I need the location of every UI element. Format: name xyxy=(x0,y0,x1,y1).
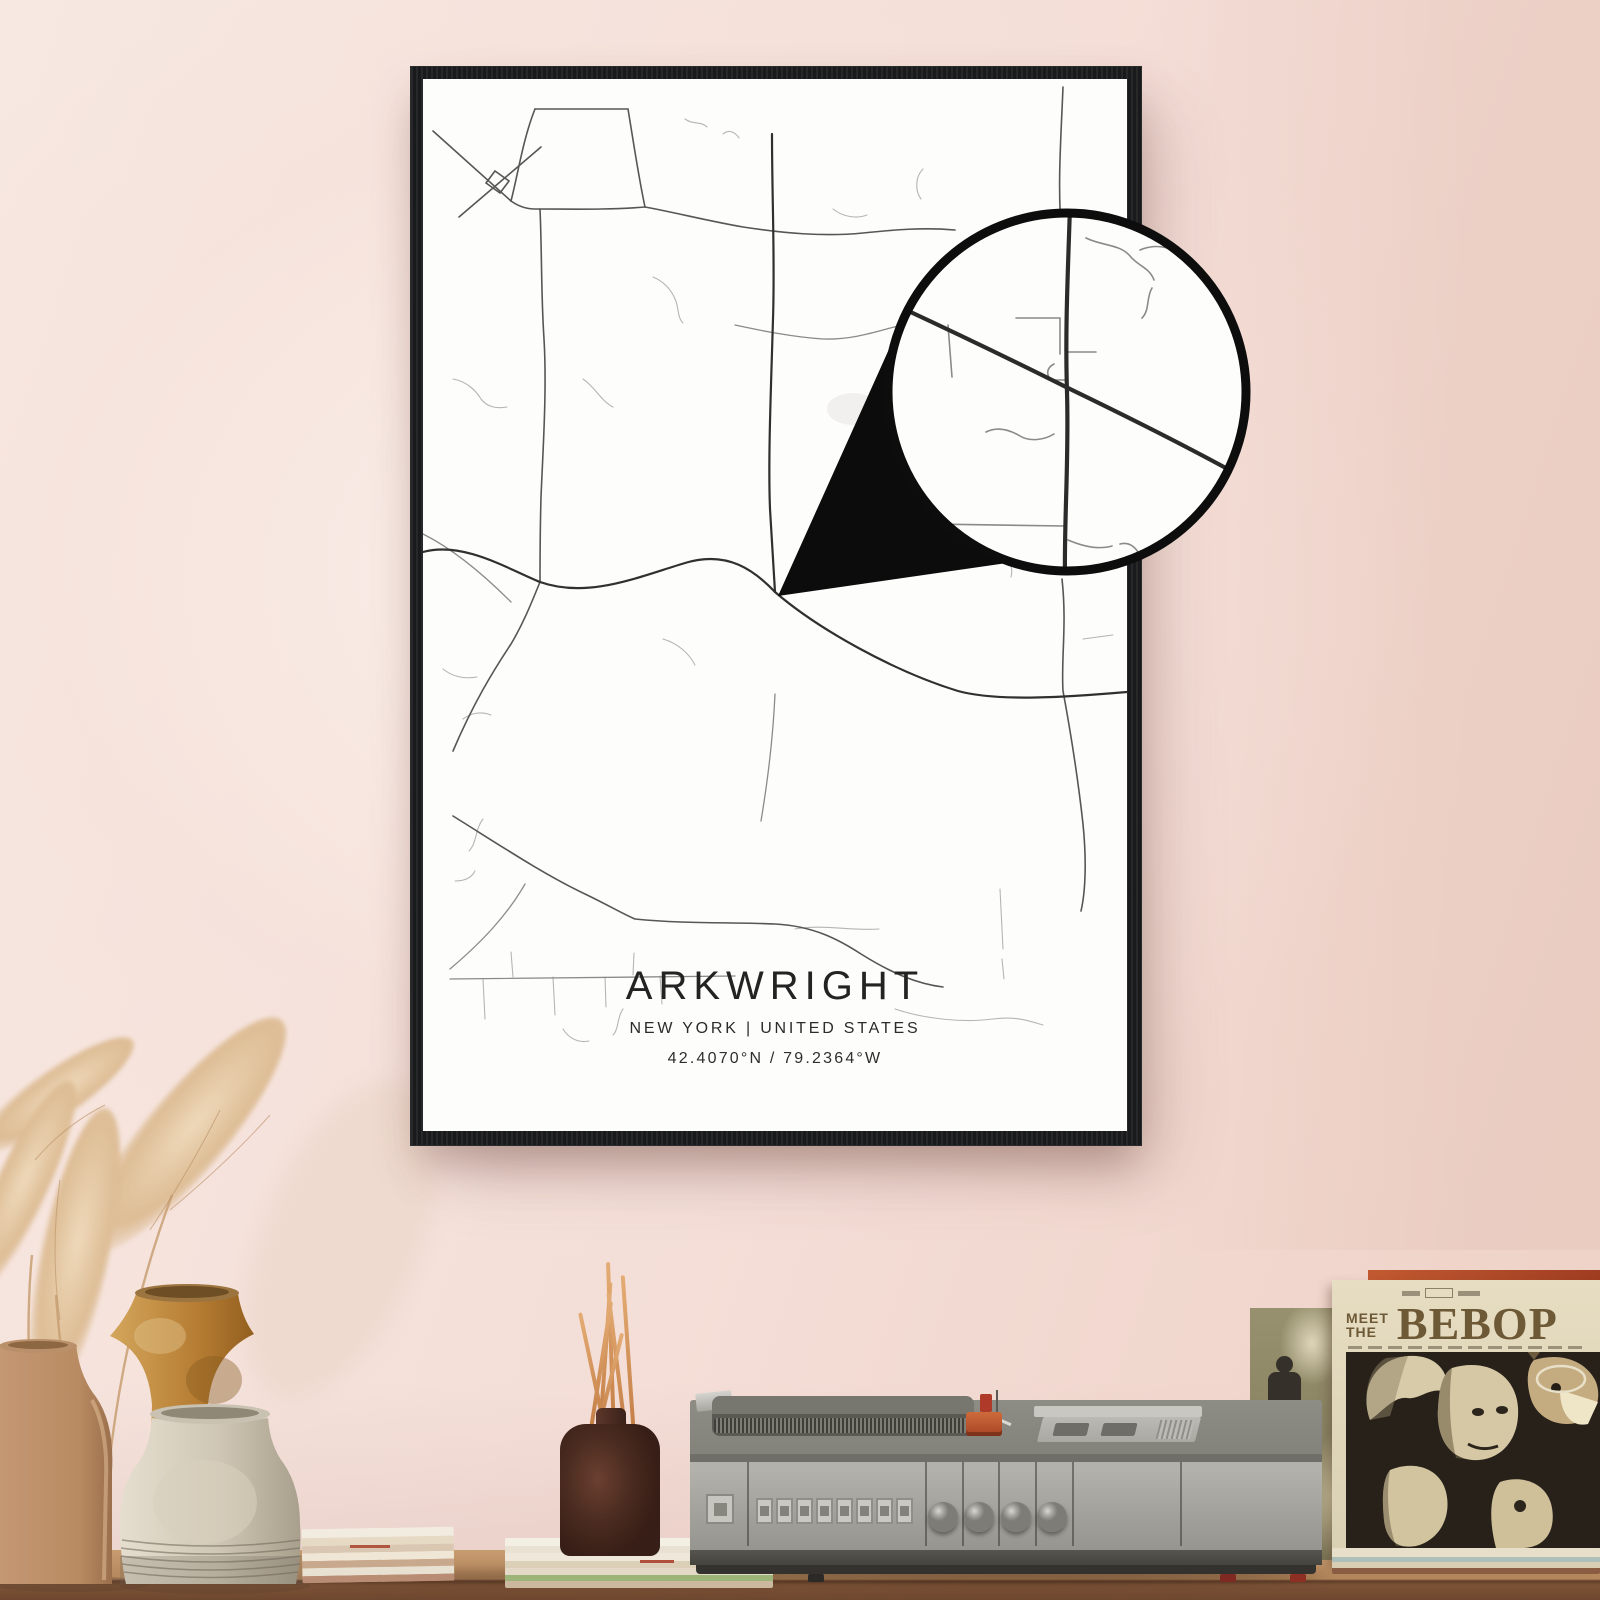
turntable-plinth xyxy=(690,1550,1322,1565)
platter-rib-texture xyxy=(714,1418,972,1433)
knob-1 xyxy=(928,1502,958,1532)
diffuser-bottle xyxy=(560,1424,660,1556)
tonearm-cap xyxy=(980,1394,992,1412)
location-coordinates: 42.4070°N / 79.2364°W xyxy=(423,1049,1127,1069)
turntable xyxy=(690,1390,1322,1582)
album-title: BEBOP xyxy=(1397,1302,1558,1346)
sleeve-fineprint-marks xyxy=(1402,1288,1480,1298)
location-title: ARKWRIGHT xyxy=(423,964,1127,1008)
magnifier-inset xyxy=(740,170,1300,650)
power-button xyxy=(706,1494,734,1524)
room-scene: ARKWRIGHT NEW YORK | UNITED STATES 42.40… xyxy=(0,0,1600,1600)
knob-4 xyxy=(1037,1502,1067,1532)
magazine-spine-accent-2 xyxy=(640,1560,674,1563)
foot-left xyxy=(808,1574,824,1582)
foot-right-red-2 xyxy=(1290,1574,1306,1582)
sleeve-under-stack xyxy=(1332,1548,1600,1574)
knob-3 xyxy=(1001,1502,1031,1532)
location-subtitle: NEW YORK | UNITED STATES xyxy=(423,1018,1127,1040)
poster-text-block: ARKWRIGHT NEW YORK | UNITED STATES 42.40… xyxy=(423,964,1127,1069)
figure-silhouette-head xyxy=(1276,1356,1293,1373)
album-pretitle: MEET THE xyxy=(1346,1311,1389,1339)
vase-gray xyxy=(120,1404,302,1584)
sleeve-subtitle-line xyxy=(1348,1346,1588,1349)
headshell-orange xyxy=(966,1412,1002,1436)
cassette-door xyxy=(1037,1417,1201,1442)
album-sleeve: MEET THE BEBOP xyxy=(1332,1280,1600,1562)
vase-group xyxy=(0,1260,480,1600)
foot-right-red xyxy=(1220,1574,1236,1582)
album-cover-photo xyxy=(1346,1352,1600,1548)
cassette-back-rail xyxy=(1034,1406,1202,1417)
turntable-base xyxy=(696,1565,1316,1574)
vase-tan xyxy=(0,1339,112,1584)
knob-2 xyxy=(964,1502,994,1532)
preset-button-row xyxy=(756,1498,913,1524)
